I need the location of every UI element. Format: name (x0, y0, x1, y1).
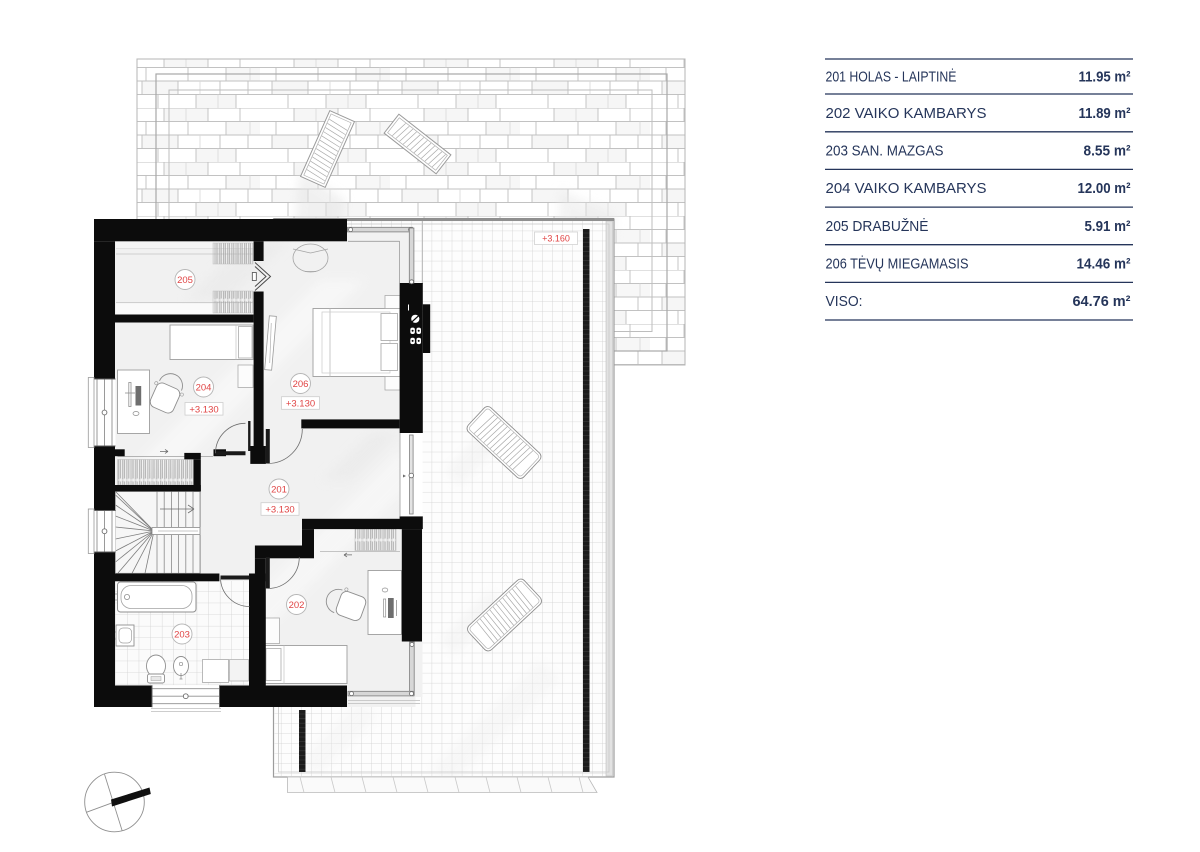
svg-text:8.55 m²: 8.55 m² (1084, 143, 1131, 160)
svg-text:206 TĖVŲ MIEGAMASIS: 206 TĖVŲ MIEGAMASIS (826, 255, 969, 273)
svg-text:204 VAIKO KAMBARYS: 204 VAIKO KAMBARYS (826, 180, 987, 197)
svg-text:205: 205 (177, 275, 193, 286)
svg-text:206: 206 (293, 379, 309, 390)
svg-text:+3.130: +3.130 (265, 505, 294, 516)
svg-text:202 VAIKO KAMBARYS: 202 VAIKO KAMBARYS (826, 105, 987, 122)
svg-text:203: 203 (174, 630, 190, 641)
svg-text:14.46 m²: 14.46 m² (1077, 256, 1131, 273)
svg-text:201: 201 (271, 485, 287, 496)
svg-text:64.76 m²: 64.76 m² (1073, 293, 1131, 310)
svg-text:11.89 m²: 11.89 m² (1079, 105, 1131, 122)
svg-text:+3.160: +3.160 (542, 234, 570, 244)
svg-text:+3.130: +3.130 (286, 399, 315, 410)
svg-text:5.91 m²: 5.91 m² (1085, 218, 1131, 235)
svg-text:VISO:: VISO: (826, 293, 863, 310)
svg-text:203 SAN. MAZGAS: 203 SAN. MAZGAS (826, 143, 944, 160)
svg-text:11.95 m²: 11.95 m² (1079, 69, 1131, 86)
svg-text:205 DRABUŽNĖ: 205 DRABUŽNĖ (826, 217, 929, 235)
svg-text:201 HOLAS - LAIPTINĖ: 201 HOLAS - LAIPTINĖ (826, 68, 957, 86)
svg-text:204: 204 (196, 383, 212, 394)
svg-text:+3.130: +3.130 (189, 404, 218, 415)
svg-text:12.00 m²: 12.00 m² (1078, 180, 1131, 197)
svg-text:202: 202 (289, 600, 305, 611)
